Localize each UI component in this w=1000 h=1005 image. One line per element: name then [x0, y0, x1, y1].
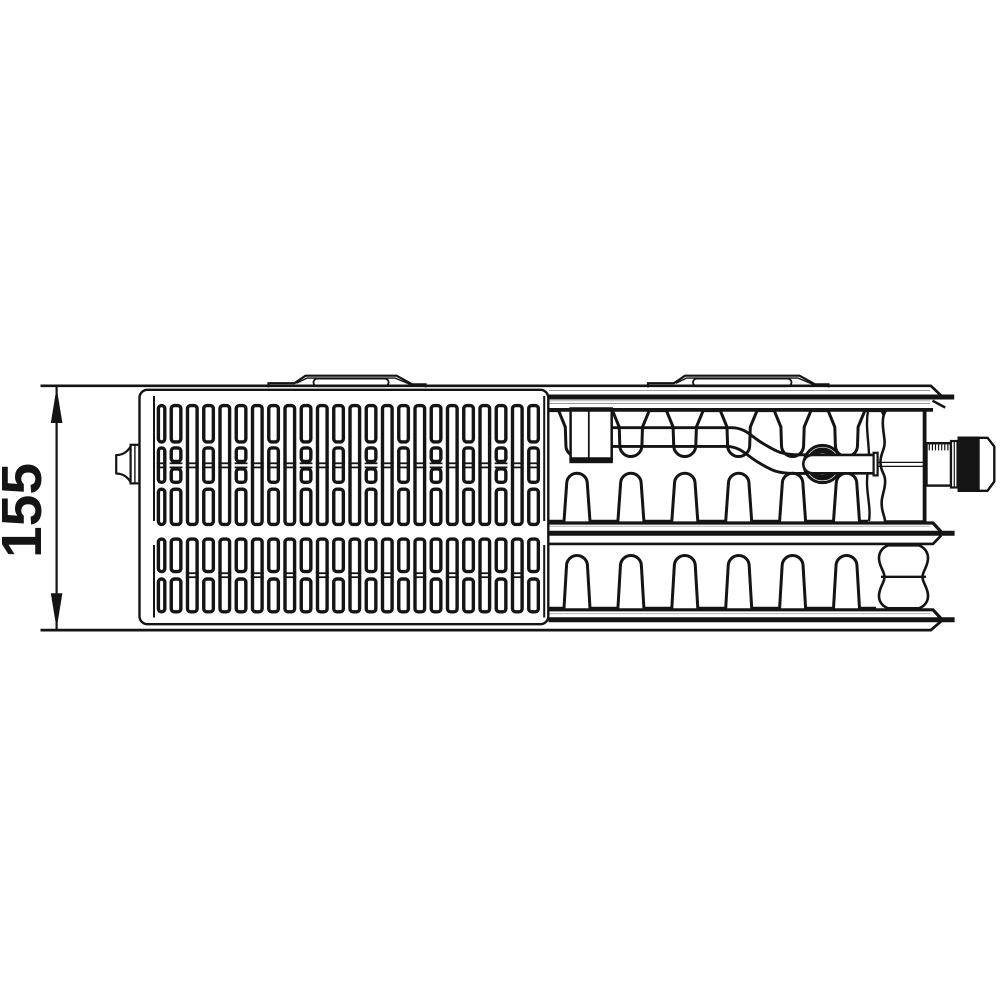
- svg-text:155: 155: [0, 463, 54, 558]
